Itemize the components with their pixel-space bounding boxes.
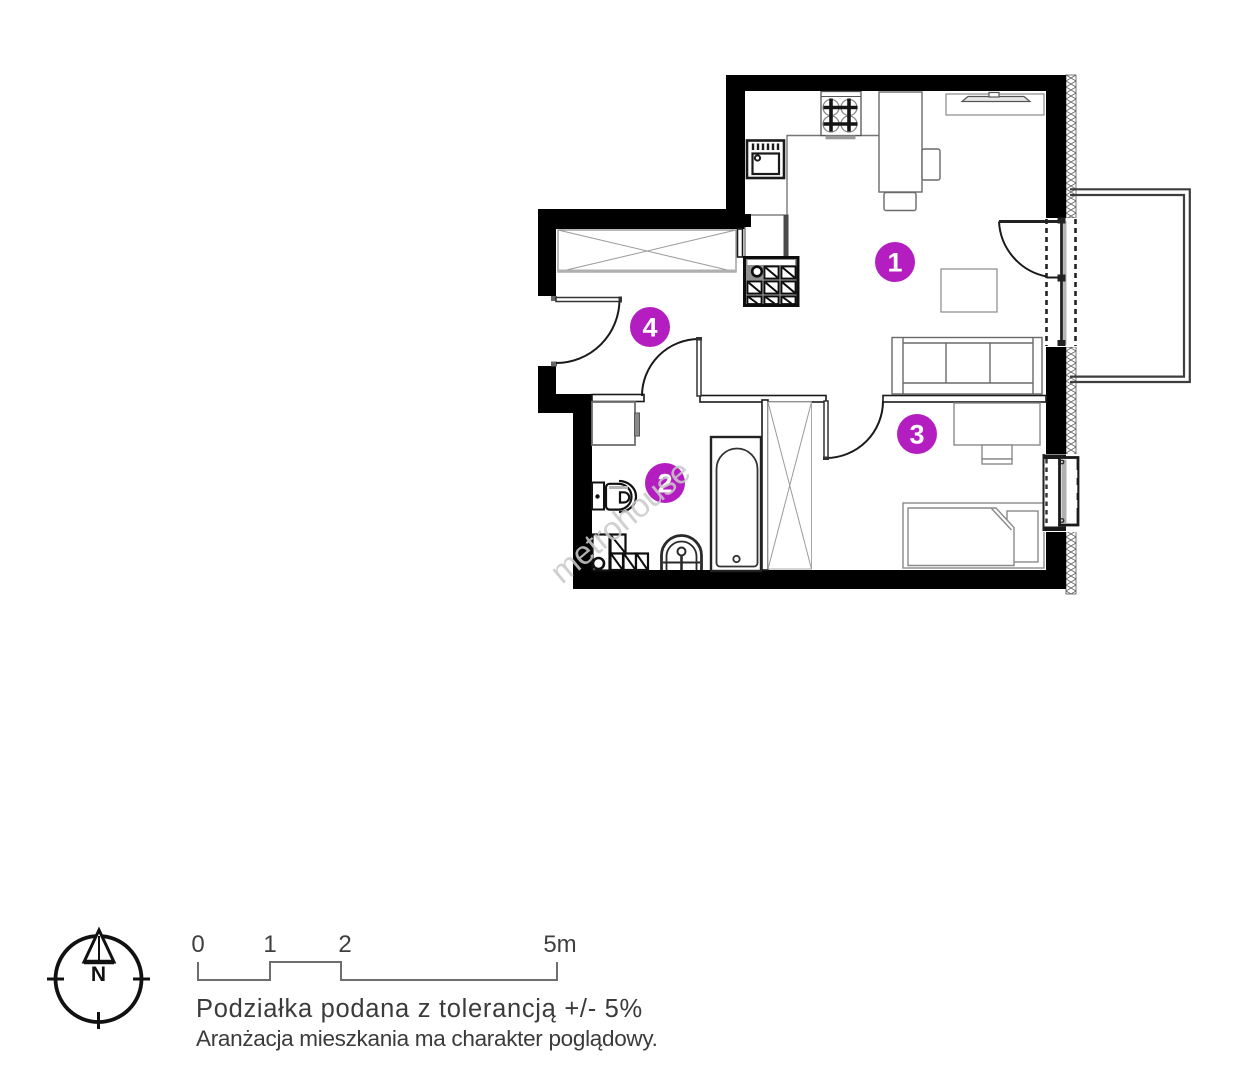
svg-text:0: 0 — [191, 931, 204, 958]
svg-text:2: 2 — [338, 931, 351, 958]
svg-text:N: N — [91, 963, 106, 986]
svg-text:1: 1 — [263, 931, 276, 958]
svg-text:Aranżacja mieszkania ma charak: Aranżacja mieszkania ma charakter pogląd… — [196, 1026, 658, 1051]
svg-text:Podziałka podana z tolerancją: Podziałka podana z tolerancją +/- 5% — [196, 995, 643, 1023]
svg-text:3: 3 — [909, 420, 924, 450]
svg-text:5m: 5m — [543, 931, 576, 958]
svg-text:4: 4 — [642, 313, 657, 343]
svg-text:1: 1 — [887, 248, 902, 278]
